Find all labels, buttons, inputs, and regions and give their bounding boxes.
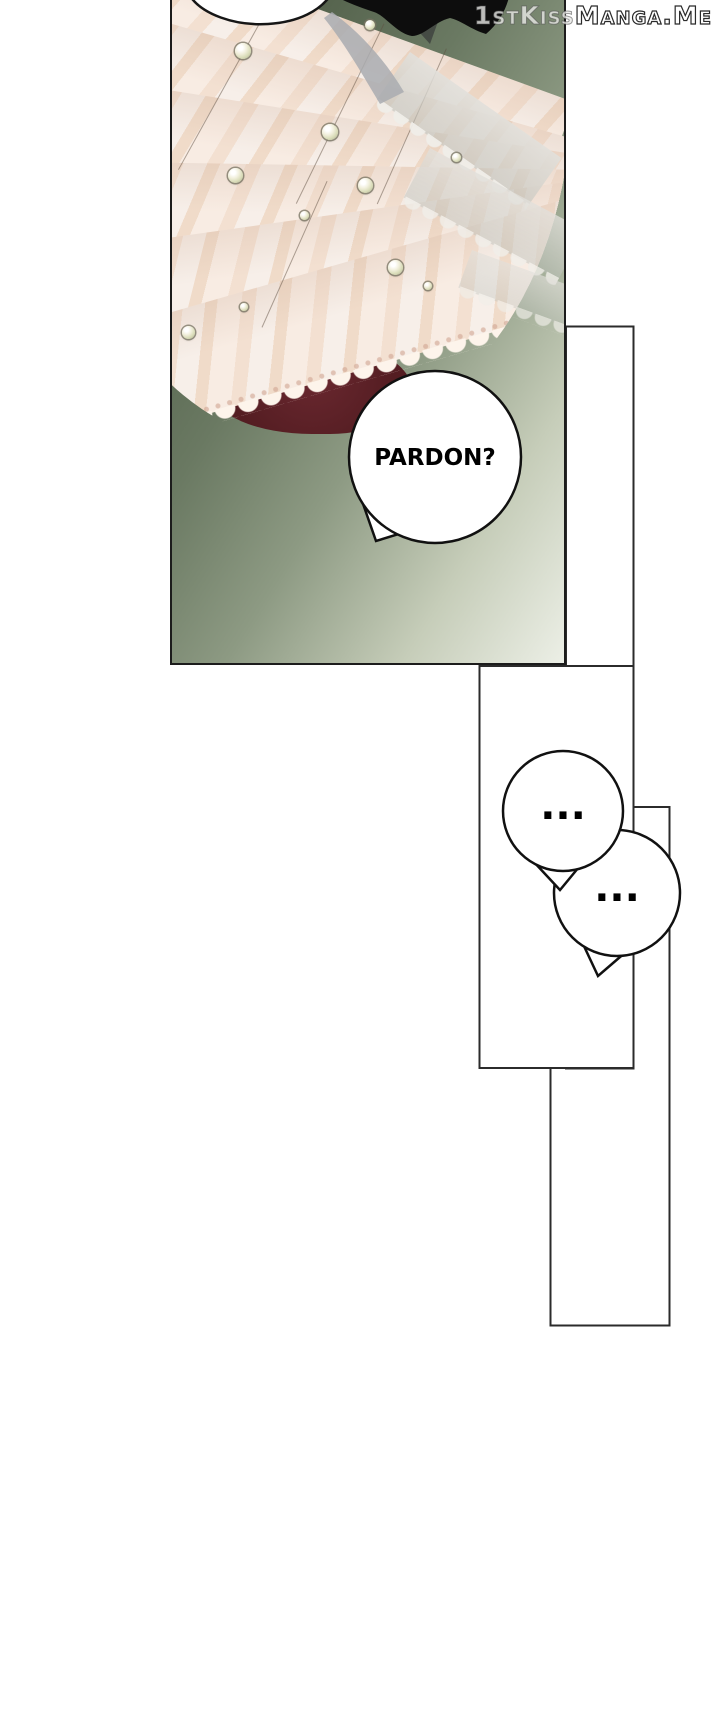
dialogue-bubble: PARDON? [349,371,521,543]
site-watermark-left: 1stKiss [474,1,575,30]
panel-foreground-art: PARDON? [172,0,564,663]
site-watermark-right: Manga.Me [575,1,712,30]
thought-bubble-1-text: ... [540,783,586,829]
dialogue-text: PARDON? [374,445,496,471]
main-art-panel: PARDON? [170,0,566,665]
manga-page: ... ... [0,0,720,1721]
thought-bubble-2-text: ... [594,865,640,911]
site-watermark: 1stKissManga.Me [0,1,712,30]
